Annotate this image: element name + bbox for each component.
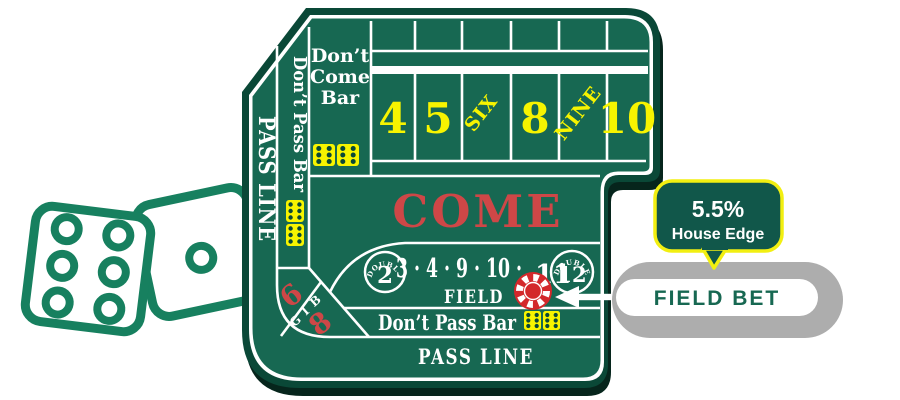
- house-edge-caption: House Edge: [672, 226, 765, 243]
- die-front: [23, 204, 152, 333]
- place-bets-band: [371, 66, 648, 74]
- box-4: 4: [378, 94, 407, 143]
- field-label: FIELD: [444, 286, 504, 308]
- pass-line-bottom-label: PASS LINE: [418, 344, 534, 369]
- pass-line-side-label: PASS LINE: [253, 116, 279, 242]
- dont-come-line2: Come: [310, 66, 370, 88]
- field-bet-infographic: Don’t Come Bar 4 5 S: [0, 0, 900, 400]
- field-bet-pill: FIELD BET: [612, 262, 843, 338]
- craps-table-illustration: Don’t Come Bar 4 5 S: [0, 0, 900, 400]
- box-5: 5: [423, 94, 452, 143]
- casino-chip-icon: [514, 272, 552, 310]
- double-2-number: 2: [377, 262, 393, 289]
- double-12-number: 12: [557, 262, 586, 287]
- field-bet-label: FIELD BET: [654, 287, 781, 310]
- craps-table: Don’t Come Bar 4 5 S: [0, 0, 663, 396]
- house-edge-callout: 5.5% House Edge: [655, 181, 782, 268]
- dont-pass-bar-side-label: Don’t Pass Bar: [289, 56, 310, 192]
- dont-pass-bar-bottom-label: Don’t Pass Bar: [378, 310, 517, 335]
- come-label: COME: [392, 185, 563, 238]
- dice-illustration: [23, 184, 267, 333]
- box-8: 8: [520, 94, 549, 143]
- field-numbers: 3 · 4 · 9 · 10 ·: [396, 254, 522, 284]
- dont-come-line1: Don’t: [311, 45, 370, 67]
- house-edge-percent: 5.5%: [692, 196, 744, 222]
- dont-come-line3: Bar: [321, 87, 360, 109]
- box-10: 10: [598, 94, 656, 143]
- callout-pointer-patch: [702, 243, 728, 250]
